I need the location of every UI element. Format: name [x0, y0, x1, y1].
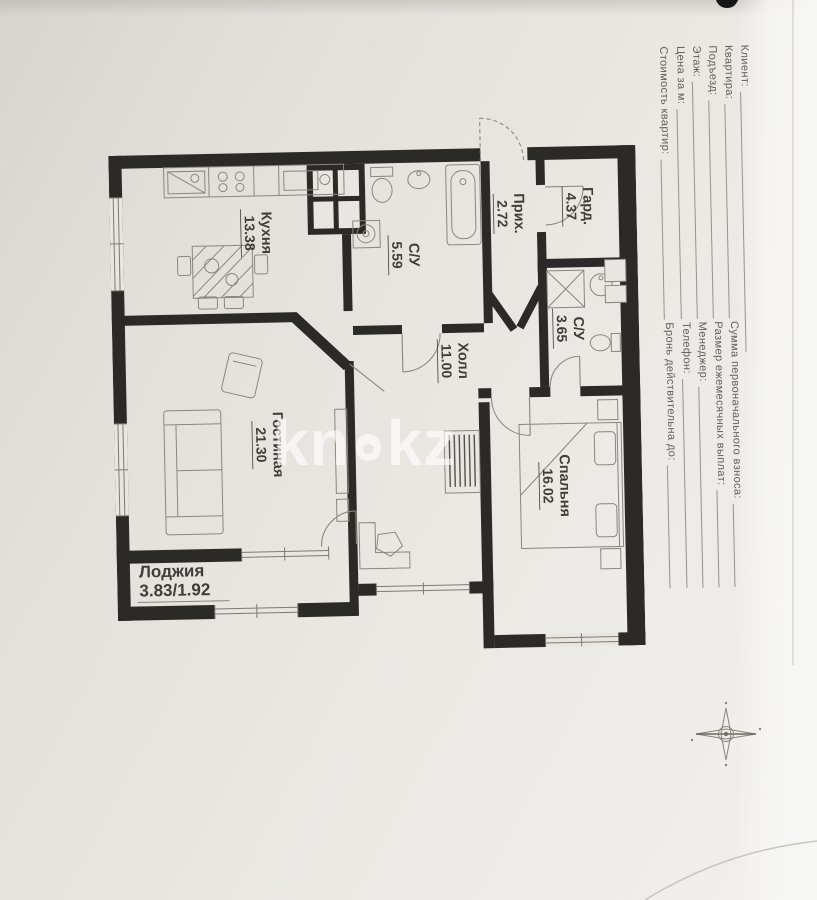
svg-text:21.30: 21.30 — [253, 427, 270, 463]
svg-text:Спальня: Спальня — [556, 454, 573, 517]
room-label-entry: Прих. 2.72 — [493, 193, 527, 234]
svg-text:Лоджия: Лоджия — [139, 561, 205, 581]
svg-text:3.65: 3.65 — [554, 315, 571, 343]
form-blank-line — [698, 387, 703, 588]
tilted-paper-content: Клиент: Квартира: Сумма первоначального … — [0, 0, 817, 900]
svg-text:4.37: 4.37 — [563, 193, 580, 221]
svg-text:5.59: 5.59 — [389, 241, 406, 269]
entrance-door-arc — [480, 117, 524, 161]
svg-text:11.00: 11.00 — [438, 344, 455, 379]
form-blank-line — [682, 379, 687, 588]
svg-text:С/У: С/У — [405, 243, 422, 268]
form-label: Стоимость квартир: — [656, 46, 672, 154]
svg-text:13.38: 13.38 — [242, 215, 259, 251]
form-label: Менеджер: — [695, 322, 710, 382]
room-label-bathroom1: С/У 5.59 — [388, 235, 422, 276]
form-blank-line — [667, 466, 671, 589]
svg-text:Гард.: Гард. — [579, 187, 596, 225]
room-label-bedroom: Спальня 16.02 — [539, 454, 573, 517]
room-label-bathroom2: С/У 3.65 — [553, 308, 587, 349]
bathroom1-fixtures — [352, 164, 482, 248]
form-label: Размер ежемесячных выплат: — [711, 321, 728, 485]
svg-text:Прих.: Прих. — [510, 193, 527, 234]
svg-text:С/У: С/У — [570, 316, 587, 341]
room-label-living: Гостиная 21.30 — [252, 412, 286, 478]
floorplan-drawing: Кухня 13.38 С/У 5.59 Прих. 2.72 — [107, 88, 646, 661]
floorplan-sheet-photo: Клиент: Квартира: Сумма первоначального … — [0, 0, 817, 900]
room-label-loggia: Лоджия 3.83/1.92 — [137, 561, 230, 603]
svg-text:Холл: Холл — [454, 342, 471, 379]
form-label: Цена за м: — [673, 46, 688, 105]
form-label: Этаж: — [689, 46, 704, 78]
svg-text:Кухня: Кухня — [257, 211, 274, 254]
svg-text:3.83/1.92: 3.83/1.92 — [139, 580, 210, 600]
room-label-wardrobe: Гард. 4.37 — [562, 186, 596, 227]
form-blank-line — [733, 504, 736, 587]
form-label: Квартира: — [721, 45, 736, 99]
form-label: Телефон: — [679, 322, 694, 374]
form-blank-line — [716, 491, 719, 588]
form-blank-line — [660, 160, 664, 320]
wall-chamfers — [488, 287, 542, 330]
form-label: Сумма первоначального взноса: — [727, 321, 745, 499]
svg-text:2.72: 2.72 — [494, 200, 511, 228]
room-label-hall: Холл 11.00 — [437, 339, 471, 384]
form-label: Подъезд: — [705, 45, 720, 95]
svg-text:16.02: 16.02 — [540, 468, 557, 504]
svg-text:Гостиная: Гостиная — [269, 412, 286, 478]
form-blank-line — [676, 109, 681, 319]
hall-workspace-furniture — [357, 430, 482, 569]
room-label-kitchen: Кухня 13.38 — [240, 209, 274, 258]
form-label: Клиент: — [737, 45, 752, 87]
form-label: Бронь действительна до: — [662, 322, 679, 461]
